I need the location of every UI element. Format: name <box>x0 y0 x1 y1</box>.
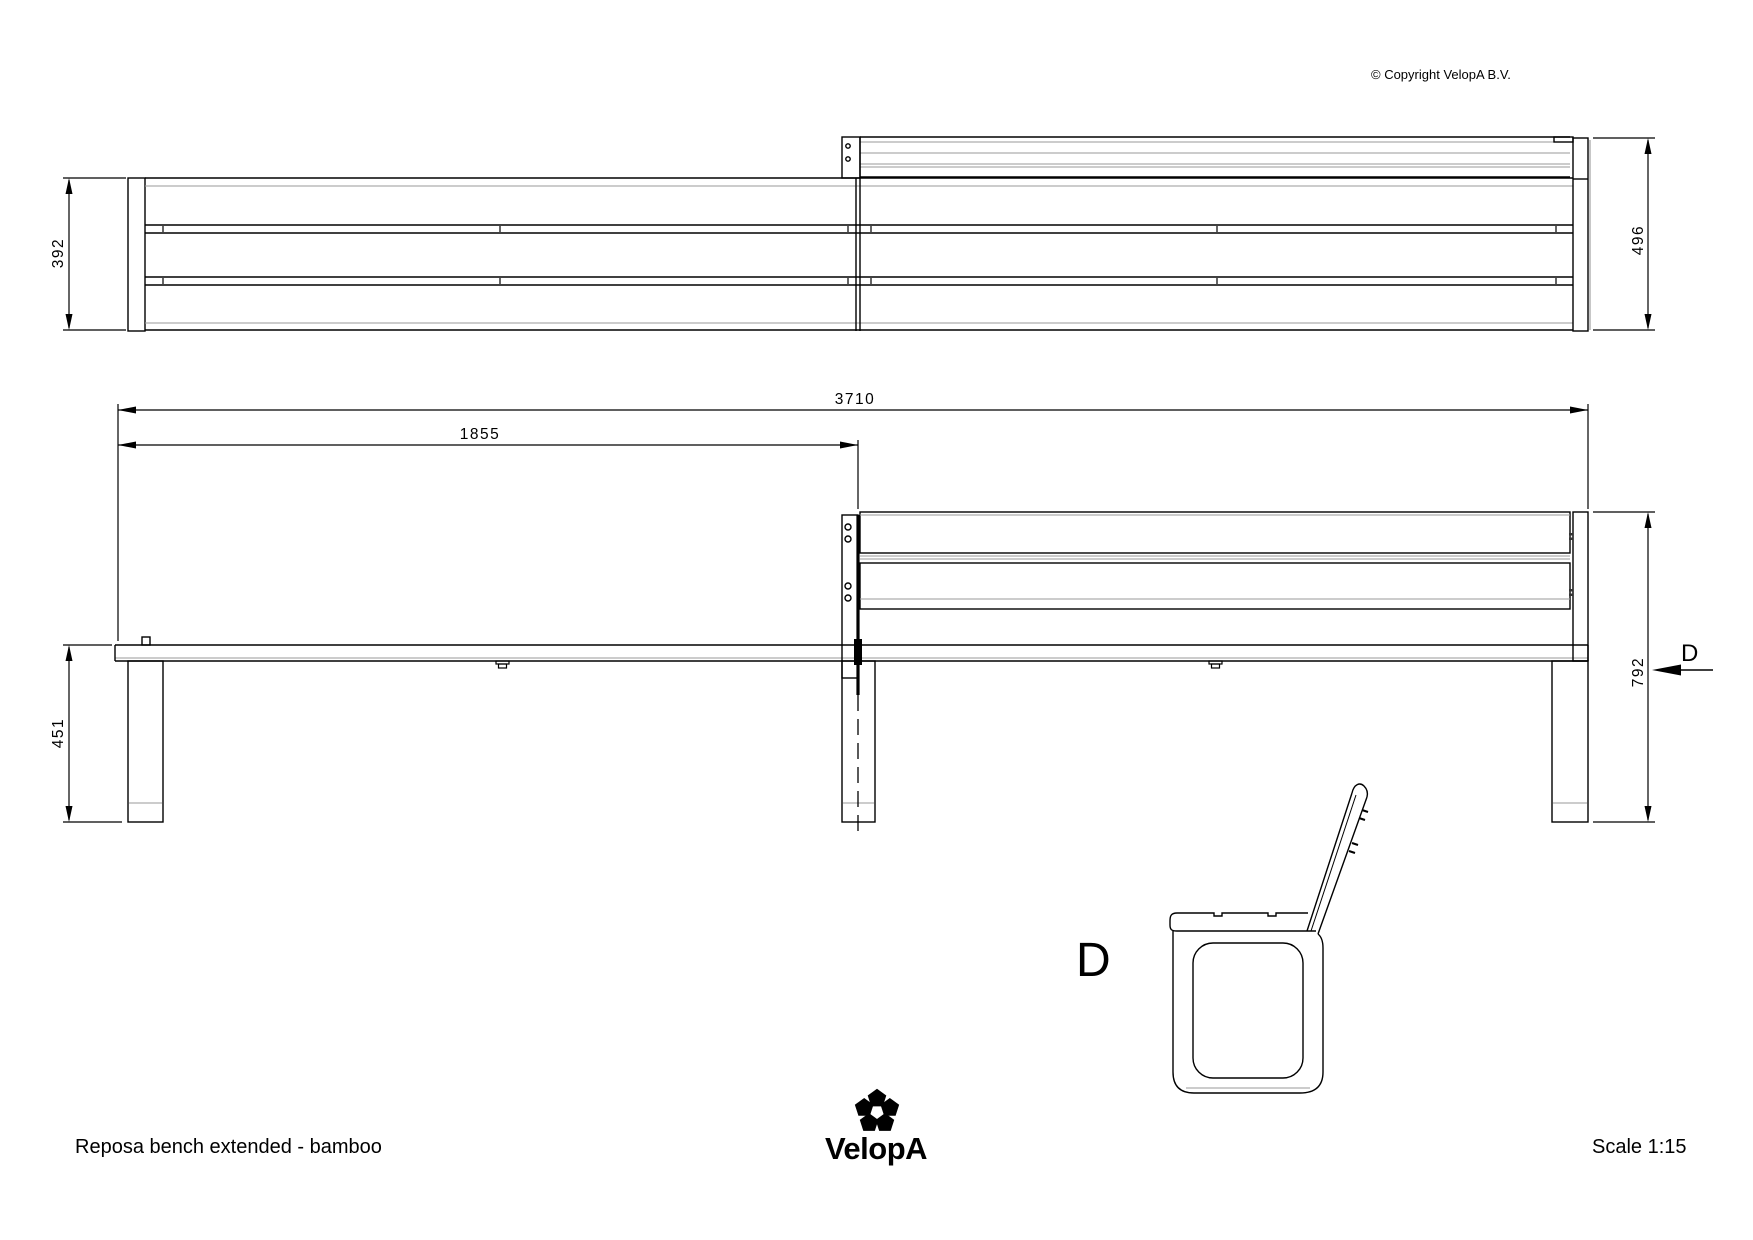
drawing-sheet: 392 496 <box>0 0 1753 1240</box>
dim-3710-label: 3710 <box>835 391 875 408</box>
dim-451-label: 451 <box>50 718 67 748</box>
dim-496-label: 496 <box>1630 225 1647 255</box>
view-arrow-d-label: D <box>1681 640 1698 667</box>
bolt-icon <box>1569 533 1573 536</box>
dim-792-label: 792 <box>1630 657 1647 687</box>
bolt-icon <box>1569 594 1573 597</box>
drawing-title: Reposa bench extended - bamboo <box>75 1136 382 1158</box>
brand-name: VelopA <box>825 1131 927 1166</box>
section-view-d-label: D <box>1076 934 1111 987</box>
dim-1855-label: 1855 <box>460 426 500 443</box>
copyright-notice: © Copyright VelopA B.V. <box>1371 67 1511 82</box>
bolt-icon <box>1569 589 1573 592</box>
bolt-icon <box>1569 538 1573 541</box>
dim-392-label: 392 <box>50 238 67 268</box>
centre-fixing-bolt <box>854 639 862 665</box>
scale-label: Scale 1:15 <box>1592 1136 1687 1158</box>
